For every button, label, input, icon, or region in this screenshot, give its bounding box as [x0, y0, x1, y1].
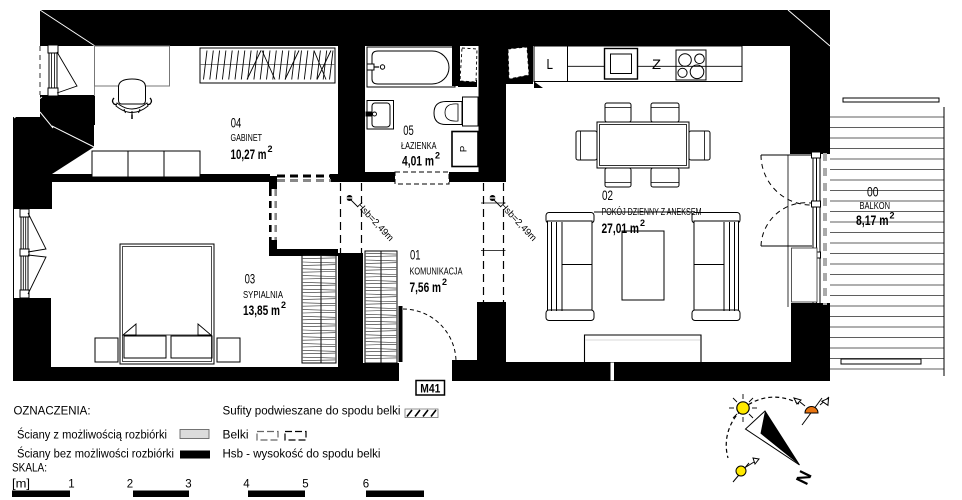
svg-text:02: 02 — [602, 187, 613, 203]
svg-text:2: 2 — [268, 144, 273, 154]
svg-text:7,56 m: 7,56 m — [410, 279, 442, 295]
svg-text:2: 2 — [281, 300, 286, 310]
svg-text:KOMUNIKACJA: KOMUNIKACJA — [410, 266, 463, 277]
svg-text:8,17 m: 8,17 m — [856, 212, 889, 228]
svg-text:04: 04 — [231, 115, 242, 131]
svg-text:2: 2 — [640, 218, 645, 228]
svg-text:SKALA:: SKALA: — [12, 463, 47, 475]
svg-text:2: 2 — [127, 479, 133, 491]
svg-text:5: 5 — [302, 479, 308, 491]
svg-text:OZNACZENIA:: OZNACZENIA: — [14, 406, 91, 418]
svg-text:05: 05 — [403, 122, 414, 138]
svg-text:03: 03 — [245, 271, 256, 287]
svg-text:Z: Z — [652, 56, 661, 72]
svg-text:2: 2 — [435, 151, 440, 161]
svg-text:4,01 m: 4,01 m — [402, 152, 434, 168]
svg-text:P: P — [459, 146, 470, 152]
svg-text:SYPIALNIA: SYPIALNIA — [243, 290, 283, 301]
svg-text:6: 6 — [363, 479, 369, 491]
svg-text:3: 3 — [185, 479, 191, 491]
svg-text:Sufity podwieszane do spodu be: Sufity podwieszane do spodu belki — [223, 406, 401, 418]
svg-text:ŁAZIENKA: ŁAZIENKA — [401, 141, 437, 152]
svg-text:[m]: [m] — [12, 479, 30, 491]
svg-text:M41: M41 — [420, 381, 440, 395]
svg-text:4: 4 — [243, 479, 250, 491]
svg-text:BALKON: BALKON — [860, 201, 891, 212]
svg-text:1: 1 — [68, 479, 74, 491]
svg-text:GABINET: GABINET — [231, 133, 263, 144]
svg-text:2: 2 — [442, 277, 447, 287]
svg-text:L: L — [547, 56, 554, 73]
svg-text:Hsb - wysokość do spodu belki: Hsb - wysokość do spodu belki — [223, 449, 381, 461]
svg-text:2: 2 — [890, 211, 895, 221]
svg-text:Belki: Belki — [223, 430, 249, 442]
svg-text:01: 01 — [410, 247, 421, 263]
svg-text:10,27 m: 10,27 m — [231, 146, 267, 162]
svg-text:13,85 m: 13,85 m — [243, 302, 280, 318]
svg-text:00: 00 — [867, 184, 879, 200]
svg-text:27,01 m: 27,01 m — [602, 220, 640, 236]
svg-text:Ściany z możliwością rozbiórki: Ściany z możliwością rozbiórki — [17, 429, 167, 442]
svg-text:Ściany bez możliwości rozbiórk: Ściany bez możliwości rozbiórki — [17, 448, 174, 461]
svg-text:POKÓJ DZIENNY Z ANEKSEM: POKÓJ DZIENNY Z ANEKSEM — [602, 205, 702, 218]
